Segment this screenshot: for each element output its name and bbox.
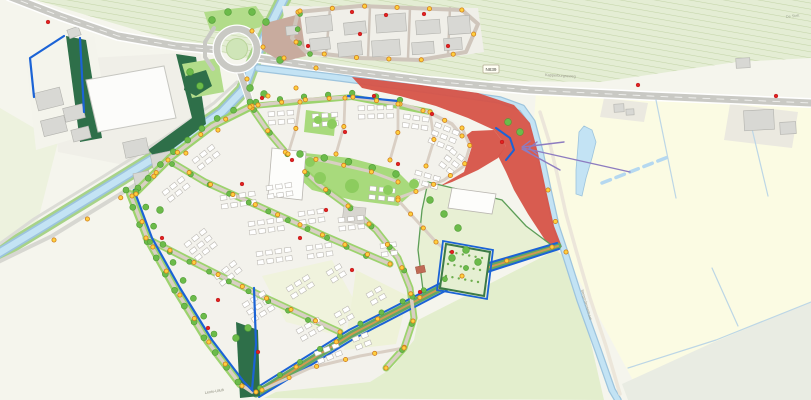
markers-north-street [303, 98, 307, 102]
trees-sw-avenue-inner [170, 259, 176, 265]
trees-nw-edge [145, 175, 151, 181]
map-canvas[interactable]: N839KapperburgsewegBergerdensestraatLent… [0, 0, 811, 400]
trees-scattered [475, 259, 482, 266]
markers-north-street [152, 174, 156, 178]
trees-scattered [505, 119, 512, 126]
markers-north-street [387, 57, 391, 61]
trees-sw-avenue-outer [123, 187, 129, 193]
markers-north-street [324, 188, 328, 192]
buildings-east [626, 109, 634, 115]
markers-yellow-singles [261, 45, 265, 49]
trees-corridor [358, 321, 363, 326]
markers-north-street [396, 198, 400, 202]
markers-north-street [468, 143, 472, 147]
trees-scattered [233, 335, 240, 342]
markers-north-street [460, 8, 464, 12]
markers-north-street [130, 194, 134, 198]
markers-north-street [424, 164, 428, 168]
trees-sw-avenue-outer [130, 204, 136, 210]
markers-north-street [443, 118, 447, 122]
tree-blobs-park [345, 179, 359, 193]
trees-sw-avenue-outer [212, 350, 218, 356]
markers-north-street [286, 152, 290, 156]
markers-north-street [346, 204, 350, 208]
markers-red [350, 10, 354, 14]
markers-north-street [199, 132, 203, 136]
buildings-industrial [371, 39, 400, 57]
trees-street-mid [285, 218, 290, 223]
building-gray-site [342, 206, 366, 224]
garden-tree-rows [472, 268, 474, 270]
buildings-east [736, 58, 751, 69]
markers-north-street [164, 269, 168, 273]
markers-north-street [409, 212, 413, 216]
markers-red [358, 32, 362, 36]
garden-tree-rows [453, 264, 455, 266]
trees-sw-avenue-outer [201, 335, 207, 341]
trees-nw-edge [157, 162, 163, 168]
buildings-industrial [444, 37, 463, 50]
markers-red [206, 326, 210, 330]
markers-north-street [151, 245, 155, 249]
buildings-east [743, 109, 774, 131]
markers-north-street [431, 182, 435, 186]
buildings-industrial [447, 15, 470, 34]
markers-north-street [354, 56, 358, 60]
markers-north-street [298, 223, 302, 227]
trees-street-lower [187, 259, 192, 264]
buildings-industrial [343, 21, 366, 35]
markers-yellow-singles [314, 66, 318, 70]
trees-nw-edge [214, 115, 220, 121]
markers-north-street [463, 162, 467, 166]
markers-north-street [338, 330, 342, 334]
markers-north-street [313, 319, 317, 323]
markers-red [446, 44, 450, 48]
markers-north-street [254, 390, 258, 394]
trees-scattered [249, 9, 256, 16]
trees-scattered [263, 19, 270, 26]
markers-north-street [400, 266, 404, 270]
tree-blobs-park [327, 119, 337, 129]
garden-tree-rows [479, 269, 481, 271]
markers-north-street [330, 6, 334, 10]
trees-street-lower [147, 239, 152, 244]
garden-tree-rows [458, 277, 460, 279]
trees-corridor [379, 310, 384, 315]
markers-north-street [388, 158, 392, 162]
markers-red [216, 298, 220, 302]
markers-north-street [472, 32, 476, 36]
trees-corridor [297, 359, 302, 364]
markers-north-street [240, 384, 244, 388]
buildings-industrial [309, 37, 330, 51]
trees-nw-edge [199, 126, 205, 132]
tree-blobs-park [383, 185, 393, 195]
markers-north-street [314, 364, 318, 368]
buildings-industrial [305, 15, 333, 34]
markers-north-street [411, 319, 415, 323]
markers-north-street [427, 7, 431, 11]
markers-north-street [385, 242, 389, 246]
markers-north-street [448, 173, 452, 177]
buildings-industrial [412, 41, 435, 55]
markers-red [343, 130, 347, 134]
markers-north-street [395, 5, 399, 9]
trees-sw-avenue-outer [153, 255, 159, 261]
markers-north-street [376, 317, 380, 321]
markers-north-street [216, 272, 220, 276]
trees-sw-avenue-inner [160, 241, 166, 247]
markers-yellow-singles [294, 86, 298, 90]
garden-tree-rows [464, 278, 466, 280]
markers-north-street [208, 182, 212, 186]
road-shield-text: N839 [486, 67, 497, 72]
markers-red [306, 44, 310, 48]
tree-blobs-park [305, 157, 315, 167]
markers-red [372, 94, 376, 98]
trees-park-edge [321, 154, 328, 161]
trees-corridor [442, 277, 447, 282]
markers-north-street [192, 316, 196, 320]
markers-yellow-singles [282, 56, 286, 60]
trees-street-lower [305, 317, 310, 322]
markers-north-street [175, 150, 179, 154]
markers-north-street [280, 100, 284, 104]
markers-north-street [294, 126, 298, 130]
markers-north-street [369, 170, 373, 174]
trees-sw-avenue-outer [235, 379, 241, 385]
markers-north-street [414, 189, 418, 193]
trees-scattered [157, 207, 164, 214]
markers-north-street [192, 260, 196, 264]
markers-north-street [384, 366, 388, 370]
map-view: N839KapperburgsewegBergerdensestraatLent… [0, 0, 811, 400]
markers-yellow-singles [245, 77, 249, 81]
markers-north-street [374, 98, 378, 102]
markers-red [384, 13, 388, 17]
markers-north-street [256, 103, 260, 107]
markers-north-street [564, 250, 568, 254]
markers-north-street [207, 340, 211, 344]
trees-street-mid [246, 200, 251, 205]
markers-north-street [184, 151, 188, 155]
markers-north-street [351, 95, 355, 99]
markers-north-street [553, 219, 557, 223]
trees-sw-avenue-inner [190, 295, 196, 301]
trees-park-edge [393, 171, 400, 178]
markers-north-street [396, 102, 400, 106]
garden-tree-rows [474, 256, 476, 258]
markers-north-street [168, 248, 172, 252]
markers-north-street [266, 129, 270, 133]
markers-north-street [276, 213, 280, 217]
garden-tree-rows [462, 253, 464, 255]
garden-tree-rows [477, 281, 479, 283]
markers-north-street [294, 365, 298, 369]
markers-north-street [178, 293, 182, 297]
garden-tree-rows [468, 254, 470, 256]
trees-scattered [427, 197, 434, 204]
markers-red [46, 20, 50, 24]
markers-north-street [505, 259, 509, 263]
markers-north-street [334, 152, 338, 156]
trees-industrial [308, 52, 313, 57]
road-shield-n839: N839 [483, 65, 499, 73]
trees-street-mid [266, 209, 271, 214]
buildings-east [614, 104, 624, 113]
markers-red [290, 158, 294, 162]
markers-red [636, 83, 640, 87]
buildings-east [780, 122, 797, 135]
trees-scattered [245, 325, 252, 332]
markers-north-street [314, 157, 318, 161]
trees-scattered [209, 17, 216, 24]
markers-red [298, 236, 302, 240]
markers-north-street [365, 252, 369, 256]
garden-tree-rows [470, 280, 472, 282]
markers-red [396, 162, 400, 166]
buildings-industrial [375, 13, 406, 33]
markers-red [450, 250, 454, 254]
garden-tree-rows [447, 263, 449, 265]
markers-north-street [320, 233, 324, 237]
markers-red [324, 208, 328, 212]
markers-north-street [396, 130, 400, 134]
markers-red [240, 182, 244, 186]
markers-north-street [322, 52, 326, 56]
markers-north-street [409, 292, 413, 296]
trees-sw-avenue-inner [201, 313, 207, 319]
markers-red [350, 268, 354, 272]
trees-sw-avenue-inner [211, 331, 217, 337]
markers-north-street [388, 262, 392, 266]
building-red-roof [415, 265, 425, 274]
markers-north-street [85, 217, 89, 221]
markers-north-street [140, 220, 144, 224]
markers-red [422, 12, 426, 16]
markers-red [430, 112, 434, 116]
trees-scattered [449, 255, 456, 262]
markers-north-street [451, 52, 455, 56]
trees-street-mid [305, 226, 310, 231]
markers-north-street [343, 357, 347, 361]
markers-north-street [343, 243, 347, 247]
markers-north-street [367, 222, 371, 226]
markers-north-street [421, 108, 425, 112]
trees-scattered [225, 9, 232, 16]
markers-north-street [460, 126, 464, 130]
markers-red [256, 350, 260, 354]
trees-park-edge [297, 151, 304, 158]
trees-sw-avenue-outer [181, 303, 187, 309]
trees-park-edge [345, 158, 352, 165]
markers-north-street [460, 134, 464, 138]
trees-corridor [400, 299, 405, 304]
markers-north-street [402, 346, 406, 350]
markers-north-street [550, 245, 554, 249]
buildings-industrial [416, 19, 441, 35]
markers-north-street [294, 40, 298, 44]
markers-north-street [419, 58, 423, 62]
markers-north-street [52, 238, 56, 242]
markers-north-street [434, 240, 438, 244]
markers-north-street [343, 96, 347, 100]
markers-north-street [248, 105, 252, 109]
markers-north-street [546, 188, 550, 192]
trees-scattered [197, 83, 204, 90]
garden-tree-rows [481, 257, 483, 259]
trees-nw-edge [185, 137, 191, 143]
markers-north-street [240, 284, 244, 288]
trees-sw-avenue-inner [143, 204, 149, 210]
markers-red [500, 140, 504, 144]
markers-north-street [303, 170, 307, 174]
markers-north-street [298, 9, 302, 13]
trees-scattered [441, 211, 448, 218]
markers-red [260, 96, 264, 100]
markers-red [774, 94, 778, 98]
markers-north-street [216, 128, 220, 132]
trees-sw-avenue-inner [151, 223, 157, 229]
trees-scattered [455, 225, 462, 232]
markers-north-street [298, 100, 302, 104]
trees-street-lower [246, 289, 251, 294]
markers-north-street [334, 340, 338, 344]
markers-north-street [264, 296, 268, 300]
markers-north-street [373, 351, 377, 355]
trees-street-mid [324, 235, 329, 240]
markers-north-street [253, 203, 257, 207]
markers-red [418, 290, 422, 294]
trees-scattered [247, 85, 254, 92]
tree-blobs-park [314, 116, 322, 124]
markers-north-street [134, 192, 138, 196]
markers-north-street [287, 375, 291, 379]
markers-north-street [460, 274, 464, 278]
markers-north-street [187, 170, 191, 174]
trees-sw-avenue-inner [180, 277, 186, 283]
markers-red [160, 236, 164, 240]
trees-scattered [517, 129, 524, 136]
markers-north-street [396, 180, 400, 184]
markers-north-street [166, 158, 170, 162]
markers-north-street [289, 307, 293, 311]
garden-tree-rows [460, 265, 462, 267]
markers-north-street [418, 295, 422, 299]
markers-north-street [342, 124, 346, 128]
markers-north-street [363, 4, 367, 8]
tree-blobs-park [314, 172, 326, 184]
markers-north-street [432, 137, 436, 141]
markers-yellow-singles [250, 29, 254, 33]
markers-north-street [342, 163, 346, 167]
trees-street-lower [226, 279, 231, 284]
trees-scattered [187, 69, 194, 76]
trees-industrial [295, 27, 300, 32]
trees-street-mid [169, 161, 174, 166]
markers-north-street [231, 192, 235, 196]
markers-north-street [144, 236, 148, 240]
markers-north-street [224, 117, 228, 121]
trees-street-lower [207, 269, 212, 274]
markers-north-street [327, 96, 331, 100]
trees-scattered [463, 247, 470, 254]
buildings-industrial [337, 41, 362, 57]
trees-corridor [317, 346, 322, 351]
markers-north-street [119, 196, 123, 200]
trees-corridor [463, 265, 468, 270]
markers-north-street [223, 362, 227, 366]
garden-tree-rows [455, 252, 457, 254]
trees-corridor [277, 372, 282, 377]
markers-north-street [421, 226, 425, 230]
garden-tree-rows [451, 276, 453, 278]
trees-sw-avenue-outer [172, 287, 178, 293]
tree-blobs-park [409, 179, 419, 189]
trees-nw-edge [231, 107, 237, 113]
markers-north-street [260, 388, 264, 392]
markers-yellow-singles [266, 94, 270, 98]
roundabout-island [227, 39, 248, 60]
